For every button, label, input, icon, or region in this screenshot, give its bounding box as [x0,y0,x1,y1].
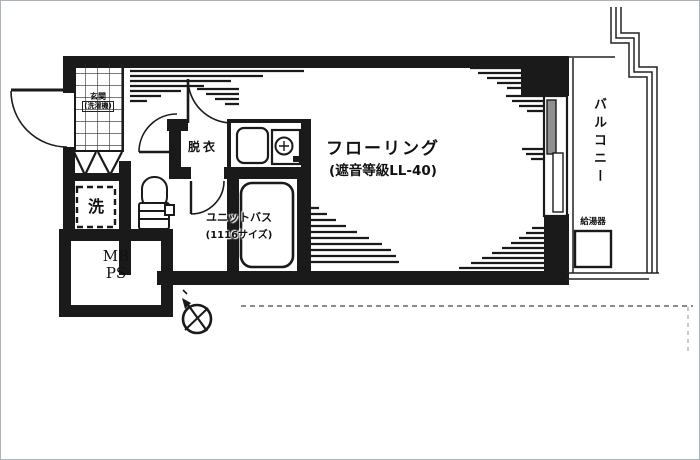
kitchen-sink [237,128,268,163]
entrance-label: 玄関 (洗濯機) [71,92,125,112]
main-room-note: (遮音等級LL-40) [291,159,475,179]
water-heater-box [575,231,611,267]
boundary-dashed-line [241,306,693,353]
floor-plan: 玄関 (洗濯機) 洗 MB PS 脱衣 ユニットバス (1116サイズ) フロー… [0,0,700,460]
meter-box-label: MB PS [73,248,159,282]
floor-plan-linework [1,1,700,460]
toilet [139,177,174,229]
entrance-label-text: 玄関 [71,92,125,101]
unit-bath-size-label: (1116サイズ) [189,226,289,241]
bifold-door [74,152,122,175]
entrance-note-text: (洗濯機) [82,101,113,112]
meter-box-line1: MB [73,248,159,265]
bathtub [241,183,293,267]
balcony-label: バルコニー [589,97,608,227]
washer-label: 洗 [79,193,113,217]
compass-north-icon [182,290,211,333]
meter-box-line2: PS [73,265,159,282]
water-heater-label: 給湯器 [569,215,617,227]
dressing-room-label: 脱衣 [177,138,229,155]
sliding-window [544,96,567,216]
main-room-label: フローリング [293,134,473,159]
unit-bath-label: ユニットバス [187,209,291,225]
